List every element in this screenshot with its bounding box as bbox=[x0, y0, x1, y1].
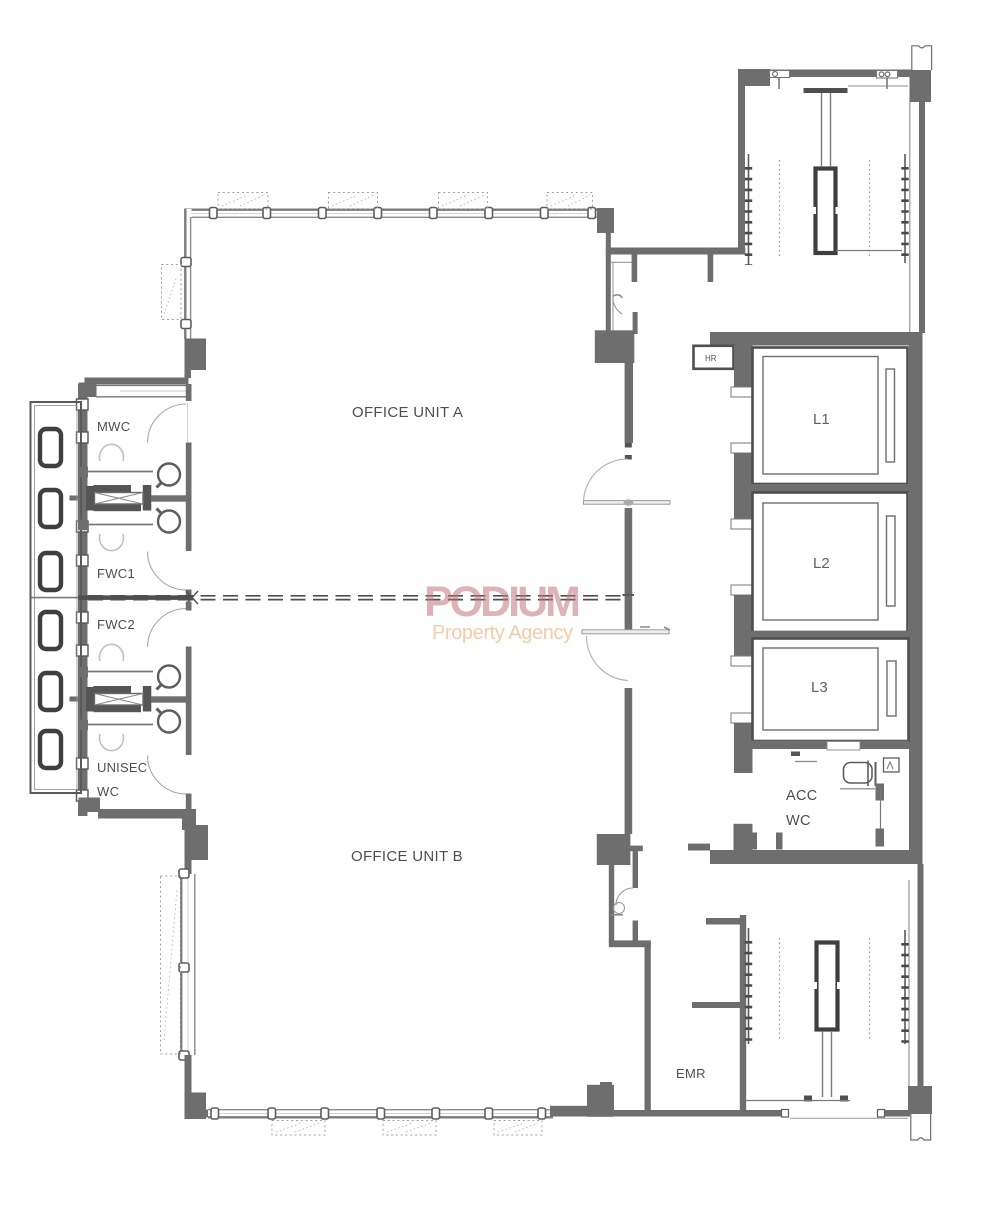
svg-text:WC: WC bbox=[97, 784, 119, 799]
svg-text:WC: WC bbox=[786, 813, 811, 829]
svg-text:L3: L3 bbox=[811, 679, 828, 696]
svg-text:UNISEC: UNISEC bbox=[97, 760, 147, 775]
svg-text:OFFICE UNIT A: OFFICE UNIT A bbox=[352, 404, 463, 421]
svg-text:FWC1: FWC1 bbox=[97, 566, 135, 581]
svg-text:OFFICE UNIT B: OFFICE UNIT B bbox=[351, 848, 463, 865]
svg-text:EMR: EMR bbox=[676, 1066, 706, 1081]
svg-text:L2: L2 bbox=[813, 555, 830, 572]
svg-text:PODIUM: PODIUM bbox=[424, 578, 581, 626]
svg-text:HR: HR bbox=[705, 354, 717, 363]
svg-text:Property Agency: Property Agency bbox=[432, 622, 573, 644]
svg-text:L1: L1 bbox=[813, 411, 830, 428]
svg-text:FWC2: FWC2 bbox=[97, 617, 135, 632]
svg-text:ACC: ACC bbox=[786, 788, 818, 804]
svg-text:MWC: MWC bbox=[97, 419, 130, 434]
